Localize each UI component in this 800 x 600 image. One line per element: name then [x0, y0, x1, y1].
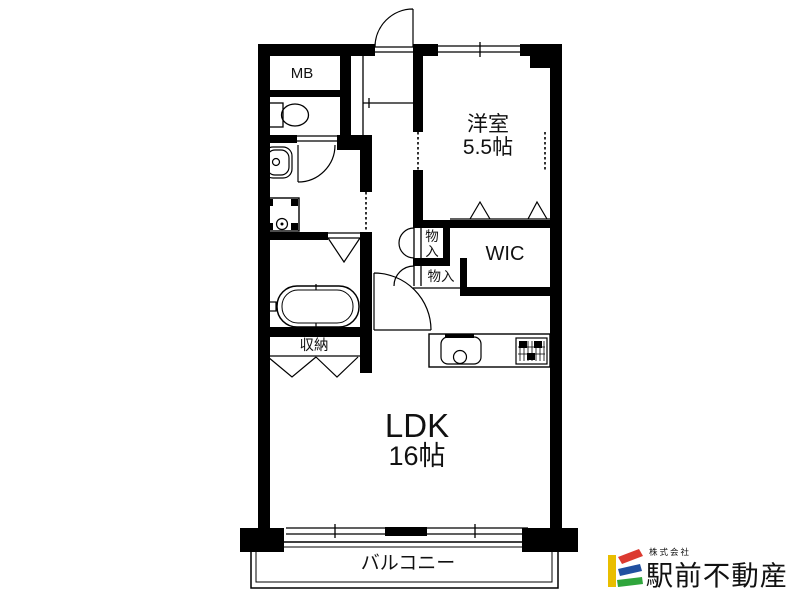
- stove-burner: [527, 353, 535, 360]
- page-background: [0, 0, 800, 600]
- wall-hall-left: [340, 56, 351, 143]
- room-label-wic: WIC: [486, 243, 525, 265]
- room-label-ldk-size: 16帖: [388, 441, 445, 471]
- wall-bath-divider: [258, 232, 328, 240]
- wall-washroom-right-bottom: [360, 232, 372, 373]
- washer-corner: [266, 223, 273, 230]
- stove-burner: [534, 341, 542, 348]
- wall-bottom-mid: [385, 527, 427, 536]
- room-label-mb: MB: [291, 65, 314, 82]
- pillar-bottom-right: [522, 528, 578, 552]
- washer-corner: [291, 223, 298, 230]
- wall-wic-bottom: [460, 287, 550, 296]
- stove-burner: [519, 341, 527, 348]
- wall-wic-top: [413, 220, 550, 228]
- wall-bath-bottom: [258, 327, 372, 337]
- wall-top-mid: [413, 44, 438, 56]
- washer-drain-dot: [281, 223, 284, 226]
- logo-company-name: 駅前不動産: [646, 560, 789, 591]
- wall-closet-divider: [413, 258, 450, 266]
- floorplan-page: MB 洋室 5.5帖 物 入 WIC 物入 収納 LDK 16帖 バルコニー 株…: [0, 0, 800, 600]
- pillar-bottom-left: [240, 528, 284, 552]
- sink-faucet: [454, 351, 467, 364]
- wall-bedroom-left-top: [413, 56, 423, 132]
- wall-mb-bottom: [258, 90, 351, 97]
- wall-corner-hall: [337, 135, 372, 150]
- room-label-bedroom-size: 5.5帖: [463, 136, 513, 159]
- wall-top-left: [258, 44, 375, 56]
- logo-company-prefix: 株式会社: [649, 547, 691, 557]
- wall-left: [258, 44, 270, 540]
- wall-wc-bottom: [258, 135, 297, 143]
- room-label-closet-upper-1: 物: [425, 229, 439, 244]
- washer-corner: [291, 199, 298, 206]
- room-label-ldk: LDK: [385, 407, 449, 444]
- room-label-closet-lower: 物入: [428, 269, 455, 284]
- wall-bedroom-left-bottom: [413, 170, 423, 228]
- logo-bar-yellow: [608, 555, 616, 587]
- room-label-closet-upper-2: 入: [425, 244, 439, 259]
- kitchen-counter: [429, 334, 550, 367]
- wall-right: [550, 44, 562, 552]
- floorplan-drawing: MB 洋室 5.5帖 物 入 WIC 物入 収納 LDK 16帖 バルコニー 株…: [0, 0, 800, 600]
- washer-corner: [266, 199, 273, 206]
- wall-washroom-right-top: [360, 150, 372, 192]
- room-label-balcony: バルコニー: [361, 553, 456, 574]
- room-label-bedroom: 洋室: [467, 113, 509, 136]
- room-label-storage: 収納: [300, 337, 329, 354]
